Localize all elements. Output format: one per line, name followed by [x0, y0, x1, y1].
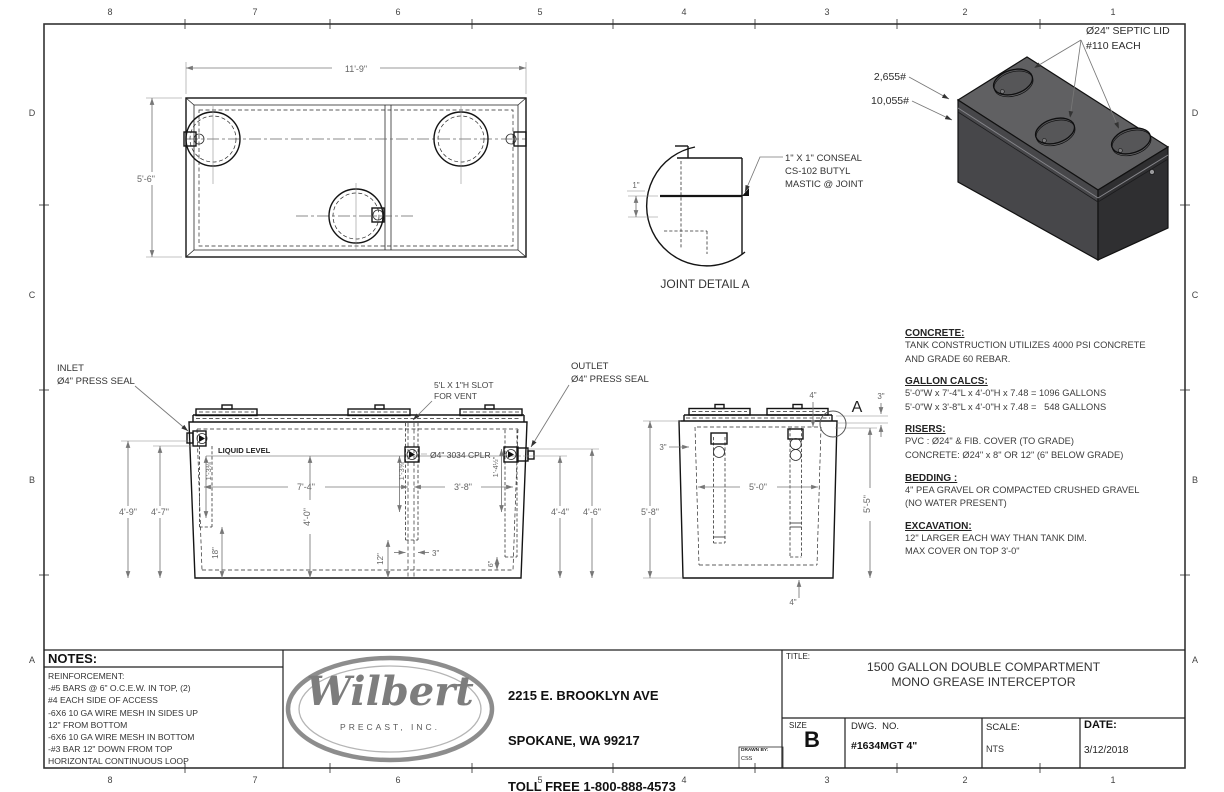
- dim-4in-bottom: 4": [789, 598, 796, 607]
- joint-detail-caption: JOINT DETAIL A: [660, 277, 749, 291]
- vent-label-line1: 5'L X 1"H SLOT: [434, 380, 494, 390]
- joint-note-line3: MASTIC @ JOINT: [785, 179, 863, 190]
- dim-3in-sidewall: 3": [659, 443, 666, 452]
- zone-col-top-4: 4: [681, 7, 686, 17]
- drawing-title-line1: 1500 GALLON DOUBLE COMPARTMENT: [782, 660, 1185, 675]
- zone-col-bottom-1: 1: [1110, 775, 1115, 785]
- notes-line: -6X6 10 GA WIRE MESH IN BOTTOM: [48, 731, 278, 743]
- notes-line: HORIZONTAL CONTINUOUS LOOP: [48, 755, 278, 767]
- dim-3ft8: 3'-8": [454, 482, 472, 492]
- drawing-title-line2: MONO GREASE INTERCEPTOR: [782, 675, 1185, 690]
- notes-line: #4 EACH SIDE OF ACCESS: [48, 694, 278, 706]
- scale-value: NTS: [986, 744, 1004, 754]
- plan-access-opening-middle: [329, 183, 384, 250]
- dwg-no-value: #1634MGT 4": [851, 740, 917, 752]
- scale-label: SCALE:: [986, 722, 1020, 733]
- mastic-wedge: [742, 188, 749, 196]
- zone-row-left-c: C: [29, 290, 36, 300]
- risers-heading: RISERS:: [905, 424, 1193, 435]
- drawn-by-label: DRAWN BY:: [741, 748, 768, 753]
- zone-col-bottom-3: 3: [824, 775, 829, 785]
- company-logo: Wilbert: [290, 668, 490, 715]
- gallon-calc-line: 5'-0"W x 7'-4"L x 4'-0"H x 7.48 = 1096 G…: [905, 387, 1193, 401]
- specs-block: CONCRETE: TANK CONSTRUCTION UTILIZES 400…: [905, 328, 1193, 559]
- dim-12in: 12": [376, 553, 385, 565]
- joint-note-line2: CS-102 BUTYL: [785, 166, 850, 177]
- zone-col-top-7: 7: [252, 7, 257, 17]
- company-logo-subtext: PRECAST, INC.: [290, 722, 490, 732]
- cross-section-view: 5'-0" 5'-8" 5'-5" 3" 4" 3" 4" A: [634, 391, 888, 607]
- section-baffle-pipe-left: [711, 433, 727, 543]
- zone-row-left-a: A: [29, 655, 35, 665]
- dim-4ft4: 4'-4": [551, 507, 569, 517]
- zone-row-right-a: A: [1192, 655, 1198, 665]
- long-section-view: LIQUID LEVEL 1'-3⅜" 18" Ø4" 3034 CPLR 1'…: [57, 361, 649, 578]
- inlet-label-line2: Ø4" PRESS SEAL: [57, 376, 135, 387]
- dim-5ft8: 5'-8": [641, 507, 659, 517]
- dim-5ft0: 5'-0": [749, 482, 767, 492]
- notes-line: -6X6 10 GA WIRE MESH IN SIDES UP: [48, 707, 278, 719]
- joint-note-line1: 1" X 1" CONSEAL: [785, 153, 862, 164]
- notes-heading: NOTES:: [48, 651, 97, 666]
- notes-line: -#3 BAR 12" DOWN FROM TOP: [48, 743, 278, 755]
- excavation-line: 12" LARGER EACH WAY THAN TANK DIM.: [905, 532, 1193, 546]
- vent-label-line2: FOR VENT: [434, 391, 477, 401]
- plan-width-dim: 11'-9": [345, 64, 367, 74]
- center-baffle-tee: [405, 423, 419, 540]
- notes-body: REINFORCEMENT: -#5 BARS @ 6" O.C.E.W. IN…: [48, 670, 278, 768]
- coupler-label: Ø4" 3034 CPLR: [430, 450, 491, 460]
- dwg-no-label: DWG. NO.: [851, 721, 899, 732]
- zone-row-left-d: D: [29, 108, 36, 118]
- dim-4ft6: 4'-6": [583, 507, 601, 517]
- outlet-label-line2: Ø4" PRESS SEAL: [571, 374, 649, 385]
- concrete-line: AND GRADE 60 REBAR.: [905, 353, 1193, 367]
- zone-col-bottom-6: 6: [395, 775, 400, 785]
- lid-callout-line2: #110 EACH: [1086, 40, 1141, 52]
- zone-col-bottom-7: 7: [252, 775, 257, 785]
- drawing-sheet: 11'-9" 5'-6" 1" 1" X 1" CONSEAL CS-102 B…: [0, 0, 1224, 792]
- inlet-baffle-dim: 1'-3⅜": [204, 459, 213, 480]
- address-line: TOLL FREE 1-800-888-4573: [508, 779, 780, 792]
- company-address-block: 2215 E. BROOKLYN AVE SPOKANE, WA 99217 T…: [508, 657, 780, 792]
- dim-7ft4: 7'-4": [297, 482, 315, 492]
- address-line: 2215 E. BROOKLYN AVE: [508, 688, 780, 703]
- zone-col-top-6: 6: [395, 7, 400, 17]
- dim-4ft0: 4'-0": [302, 508, 312, 526]
- zone-col-top-2: 2: [962, 7, 967, 17]
- lid-callout-line1: Ø24" SEPTIC LID: [1086, 25, 1170, 37]
- dim-18in: 18": [211, 547, 220, 559]
- notes-line: REINFORCEMENT:: [48, 670, 278, 682]
- center-baffle-dim: 1'-3⅝": [397, 459, 406, 480]
- dim-4ft9: 4'-9": [119, 507, 137, 517]
- liquid-level-label: LIQUID LEVEL: [218, 446, 271, 455]
- plan-height-dim: 5'-6": [137, 174, 155, 184]
- dim-3in-topslab: 3": [877, 392, 884, 401]
- dim-5ft5: 5'-5": [862, 495, 872, 513]
- risers-line: PVC : Ø24" & FIB. COVER (TO GRADE): [905, 435, 1193, 449]
- excavation-heading: EXCAVATION:: [905, 521, 1193, 532]
- lift-pin-dot: [1150, 170, 1155, 175]
- zone-col-bottom-2: 2: [962, 775, 967, 785]
- plan-access-opening-right: [434, 106, 526, 184]
- zone-col-top-1: 1: [1110, 7, 1115, 17]
- tank-weight-label: 10,055#: [871, 95, 909, 107]
- address-line: SPOKANE, WA 99217: [508, 733, 780, 748]
- concrete-line: TANK CONSTRUCTION UTILIZES 4000 PSI CONC…: [905, 339, 1193, 353]
- outlet-label-line1: OUTLET: [571, 361, 609, 372]
- outlet-baffle-dim: 1'-4½": [491, 456, 500, 477]
- plan-access-opening-left: [184, 106, 240, 184]
- zone-row-right-c: C: [1192, 290, 1199, 300]
- bedding-heading: BEDDING :: [905, 473, 1193, 484]
- gallon-calcs-heading: GALLON CALCS:: [905, 376, 1193, 387]
- zone-col-top-8: 8: [107, 7, 112, 17]
- zone-col-top-3: 3: [824, 7, 829, 17]
- risers-line: CONCRETE: Ø24" x 8" OR 12" (6" BELOW GRA…: [905, 449, 1193, 463]
- dim-3in-wall: 3": [432, 549, 439, 558]
- size-value: B: [804, 727, 820, 753]
- drawing-title: 1500 GALLON DOUBLE COMPARTMENT MONO GREA…: [782, 660, 1185, 689]
- zone-row-right-d: D: [1192, 108, 1199, 118]
- date-label: DATE:: [1084, 719, 1117, 731]
- excavation-line: MAX COVER ON TOP 3'-0": [905, 545, 1193, 559]
- detail-a-circle: [820, 411, 846, 437]
- zone-row-left-b: B: [29, 475, 35, 485]
- joint-detail-view: 1" 1" X 1" CONSEAL CS-102 BUTYL MASTIC @…: [627, 146, 863, 291]
- dim-4in-top: 4": [809, 391, 816, 400]
- notes-line: 12" FROM BOTTOM: [48, 719, 278, 731]
- inlet-label-line1: INLET: [57, 363, 84, 374]
- section-baffle-pipe-right: [788, 428, 803, 557]
- zone-col-top-5: 5: [537, 7, 542, 17]
- notes-line: -#5 BARS @ 6" O.C.E.W. IN TOP, (2): [48, 682, 278, 694]
- concrete-heading: CONCRETE:: [905, 328, 1193, 339]
- lid-weight-label: 2,655#: [874, 71, 906, 83]
- drawn-by-value: CSS: [741, 756, 752, 762]
- gallon-calc-line: 5'-0"W x 3'-8"L x 4'-0"H x 7.48 = 548 GA…: [905, 401, 1193, 415]
- bedding-line: (NO WATER PRESENT): [905, 497, 1193, 511]
- bedding-line: 4" PEA GRAVEL OR COMPACTED CRUSHED GRAVE…: [905, 484, 1193, 498]
- dim-4ft7: 4'-7": [151, 507, 169, 517]
- detail-a-letter: A: [852, 399, 863, 416]
- dim-6in: 6": [486, 560, 495, 567]
- plan-view: 11'-9" 5'-6": [127, 61, 526, 257]
- date-value: 3/12/2018: [1084, 745, 1129, 756]
- zone-col-bottom-8: 8: [107, 775, 112, 785]
- joint-1in-dim: 1": [632, 181, 639, 190]
- isometric-view: Ø24" SEPTIC LID #110 EACH 2,655# 10,055#: [871, 25, 1170, 260]
